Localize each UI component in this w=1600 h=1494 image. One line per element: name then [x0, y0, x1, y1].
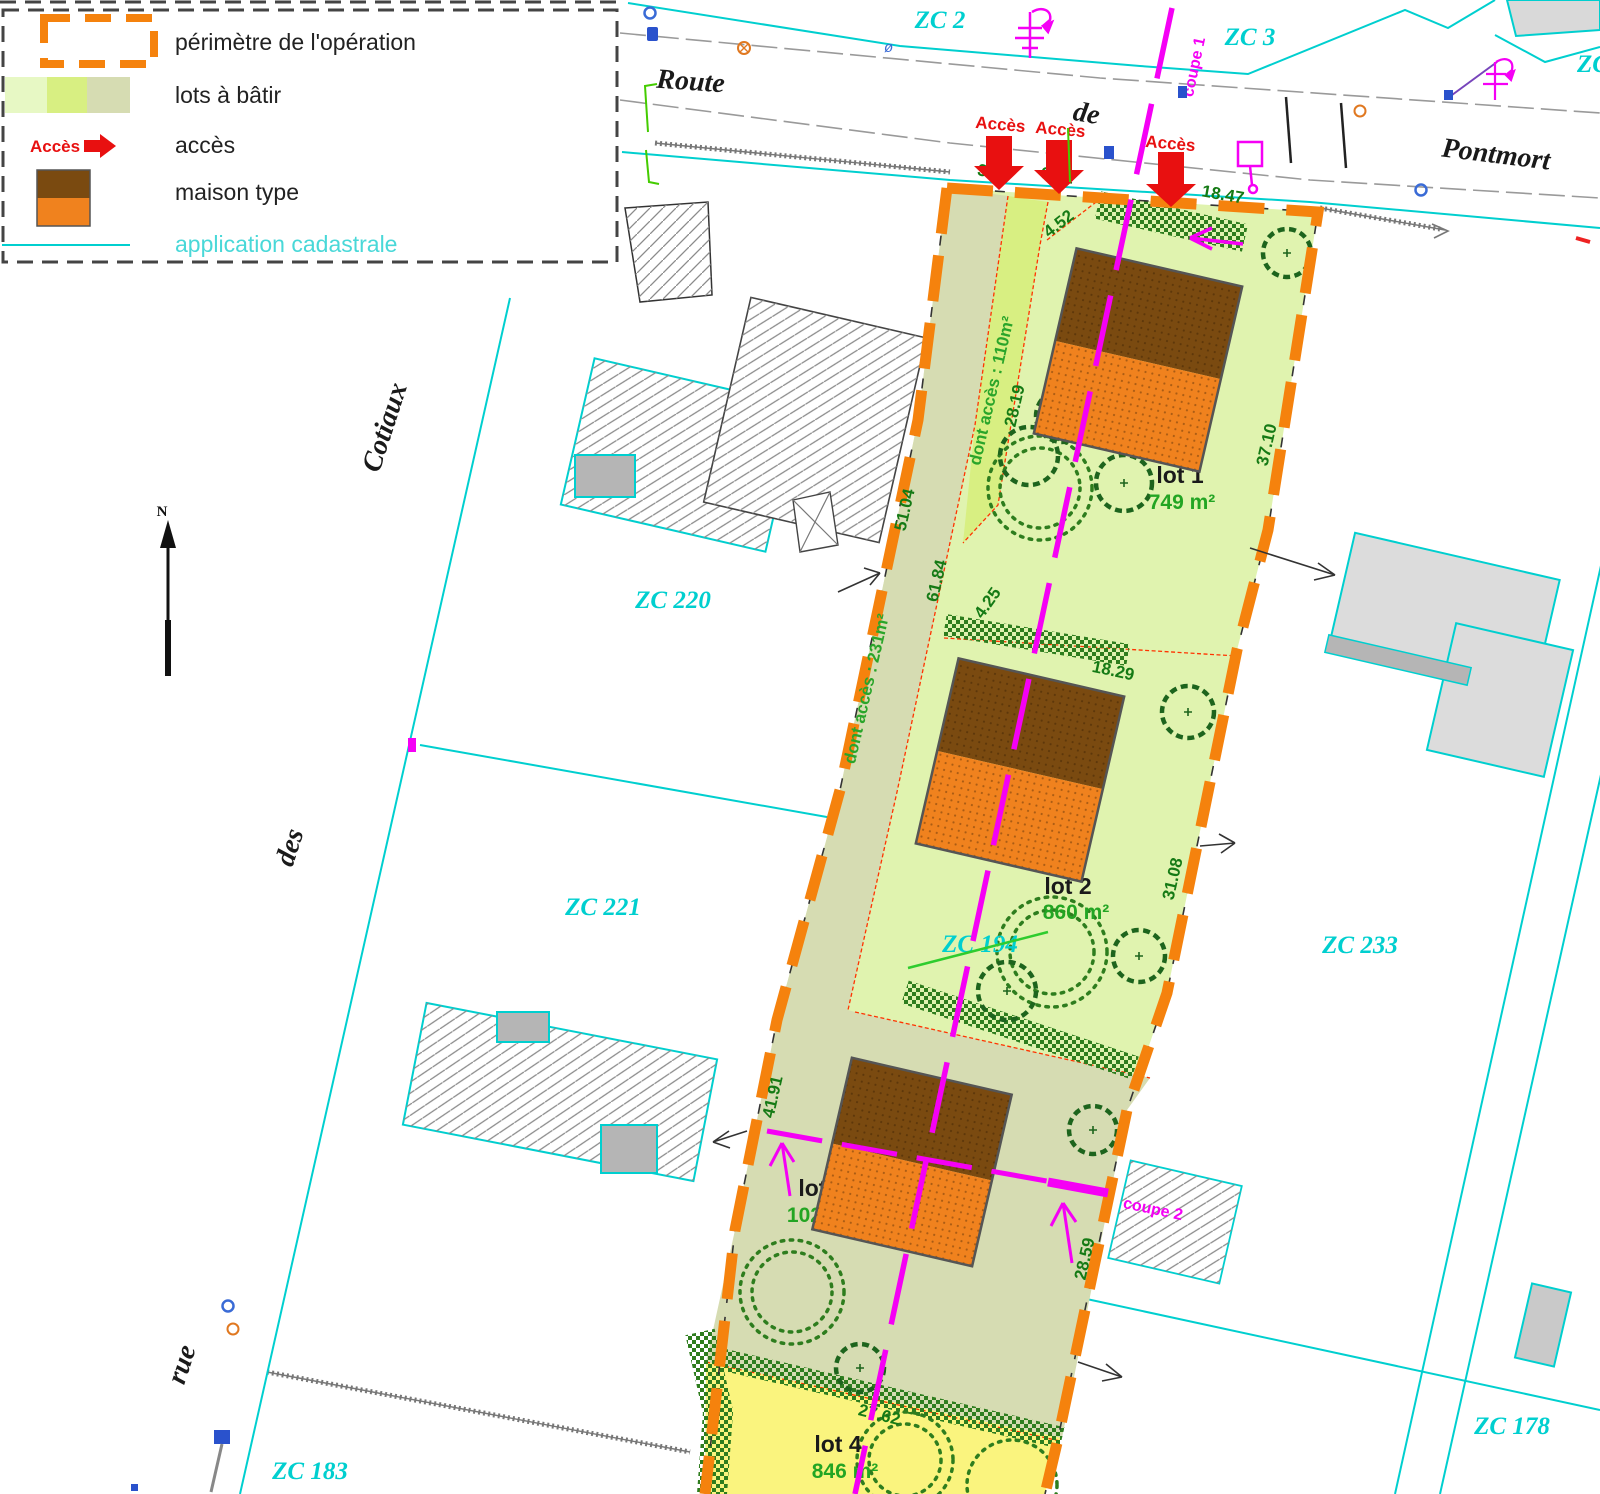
legend-perimeter-label: périmètre de l'opération — [175, 29, 416, 55]
lot1-area: 749 m² — [1149, 491, 1216, 514]
legend-house-label: maison type — [175, 179, 299, 205]
svg-text:ø: ø — [884, 39, 893, 56]
parcel-label-zc2: ZC 2 — [914, 7, 966, 34]
parcel-label-zc-edge: ZC — [1576, 51, 1600, 78]
building-gray-topright — [1507, 0, 1600, 36]
parcel-label-zc221: ZC 221 — [564, 894, 641, 921]
legend-house-swatch — [37, 170, 90, 226]
legend: périmètre de l'opération lots à bâtir Ac… — [0, 2, 618, 262]
legend-perimeter-swatch — [44, 18, 154, 64]
site-plan-map: ZC 2 ZC 3 ZC ZC 220 ZC 221 ZC 233 ZC 194… — [0, 0, 1600, 1494]
legend-lots-label: lots à bâtir — [175, 82, 281, 108]
parcel-label-zc194: ZC 194 — [941, 931, 1018, 958]
legend-access-label: accès — [175, 132, 235, 158]
legend-lots-swatches — [5, 77, 130, 113]
lot4-name: lot 4 — [814, 1431, 861, 1457]
parcel-label-zc233: ZC 233 — [1321, 932, 1398, 959]
street-label-route: Route — [654, 64, 725, 100]
parcel-label-zc183: ZC 183 — [271, 1458, 348, 1485]
parcel-label-zc220: ZC 220 — [634, 587, 711, 614]
building-annex-gray — [575, 455, 635, 497]
building-annex-crossed — [793, 492, 838, 552]
north-label: N — [157, 504, 168, 520]
parcel-label-zc178: ZC 178 — [1473, 1413, 1550, 1440]
legend-access-key: Accès — [30, 137, 80, 156]
legend-cadastral-label: application cadastrale — [175, 231, 397, 257]
lot2-area: 860 m² — [1043, 901, 1110, 924]
lot4-area: 846 m² — [812, 1460, 879, 1483]
boundary-mark-magenta — [408, 738, 416, 752]
parcel-label-zc3: ZC 3 — [1224, 24, 1276, 51]
site-plan-page: ZC 2 ZC 3 ZC ZC 220 ZC 221 ZC 233 ZC 194… — [0, 0, 1600, 1494]
